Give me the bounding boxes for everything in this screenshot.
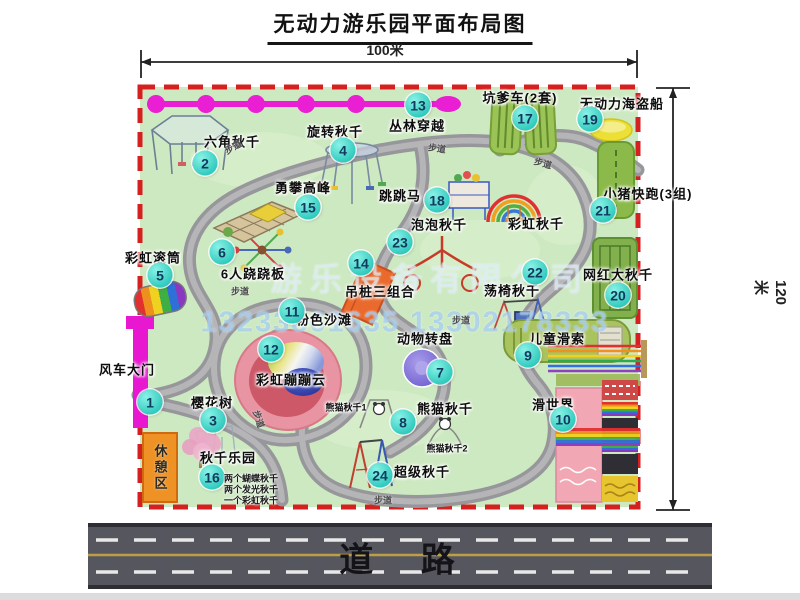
big-swing-icon <box>593 238 637 318</box>
dimension-width-line <box>141 50 637 78</box>
park-layout-screenshot: 游乐设备有限公司 13233861635 13302178333 无动力游乐园平… <box>0 0 800 600</box>
park-map-canvas <box>0 0 800 600</box>
dimension-height-line <box>656 88 690 510</box>
pirate-ship-icon <box>590 119 632 141</box>
pink-beach-icon <box>235 330 341 430</box>
road <box>88 523 712 589</box>
animal-turntable-icon <box>403 349 441 387</box>
slide-world-icon <box>556 374 640 502</box>
piggy-run-track-icon <box>598 142 634 218</box>
